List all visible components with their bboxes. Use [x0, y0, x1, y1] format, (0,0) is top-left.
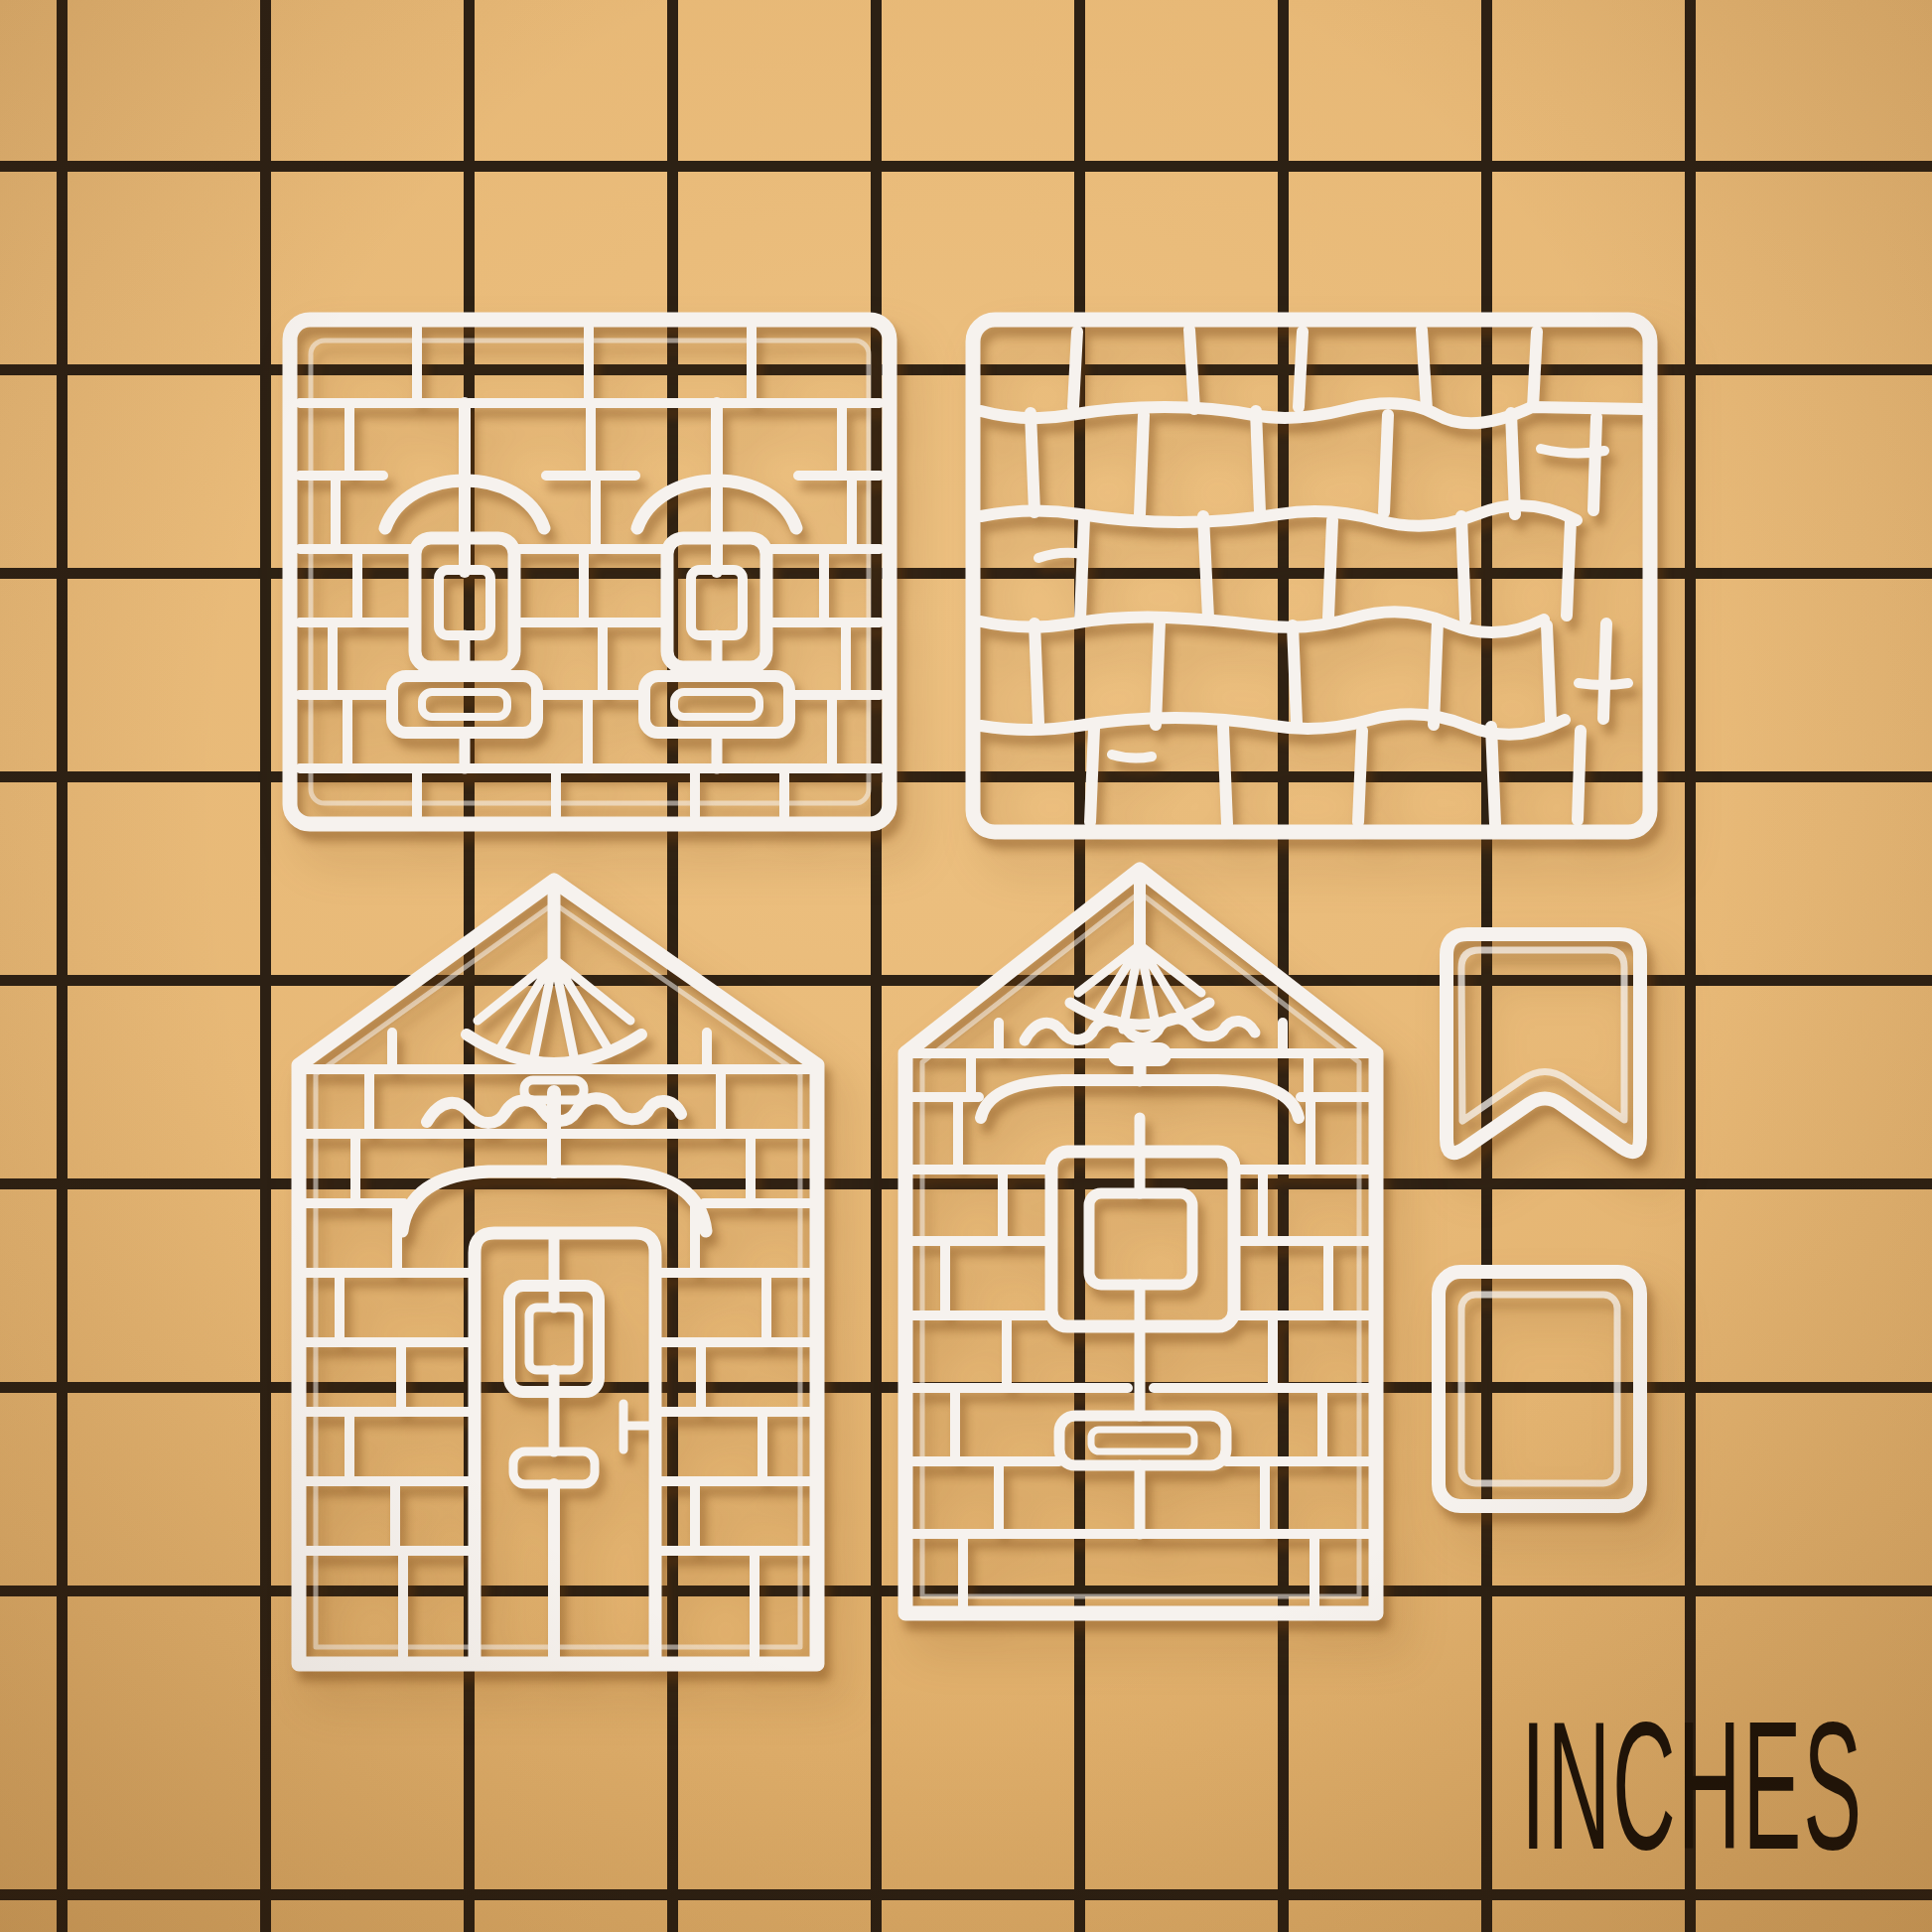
cutter-banner [1447, 934, 1640, 1153]
back-window [1051, 1118, 1234, 1534]
cutter-back-wall-window [905, 870, 1376, 1613]
cutter-roof-cobblestone [973, 320, 1650, 832]
cutter-side-wall-brick [290, 320, 890, 824]
gable-fan [467, 959, 641, 1100]
window-motif [637, 403, 796, 768]
cutters-layer [0, 0, 1932, 1932]
cutter-small-rectangle [1439, 1272, 1640, 1506]
door [475, 1233, 655, 1664]
cutter-front-wall-door [299, 881, 817, 1664]
product-photo-scene: INCHES [0, 0, 1932, 1932]
sill-slot [1059, 1416, 1226, 1465]
inches-scale-label: INCHES [1521, 1682, 1863, 1890]
window-motif [385, 403, 544, 768]
door-handle [623, 1404, 651, 1449]
